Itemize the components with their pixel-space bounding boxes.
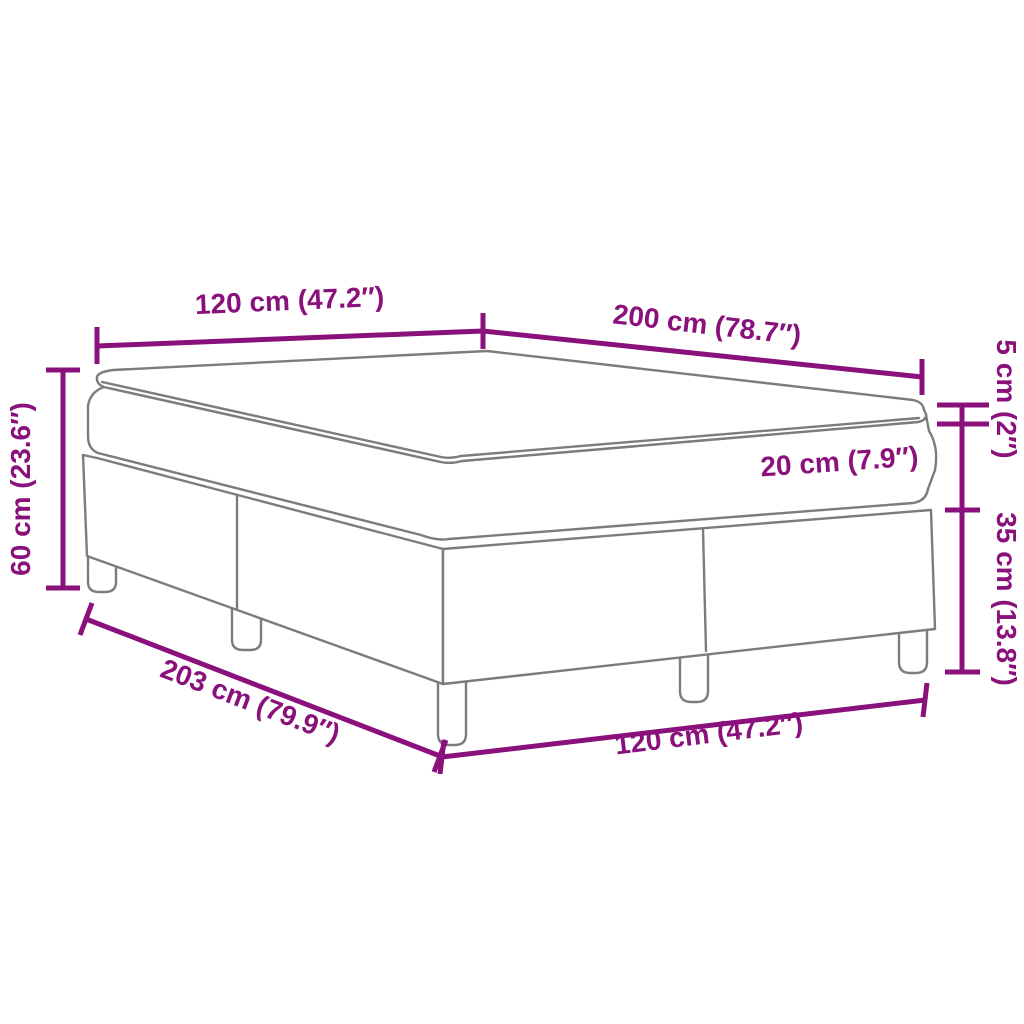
dimension-total-height: 60 cm (23.6″) xyxy=(5,370,80,588)
dimension-label: 200 cm (78.7″) xyxy=(611,298,803,350)
bed-dimension-diagram: 120 cm (47.2″) 200 cm (78.7″) 5 cm (2″) … xyxy=(0,0,1024,1024)
dimension-tick xyxy=(440,740,444,774)
dimension-right-rail: 5 cm (2″) 35 cm (13.8″) xyxy=(937,339,1022,685)
dimension-label-topper-height: 5 cm (2″) xyxy=(991,339,1022,458)
dimension-label: 60 cm (23.6″) xyxy=(5,402,36,576)
dimension-line xyxy=(97,331,483,346)
diagram-canvas: 120 cm (47.2″) 200 cm (78.7″) 5 cm (2″) … xyxy=(0,0,1024,1024)
dimension-label: 120 cm (47.2″) xyxy=(613,707,805,761)
dimension-head-width: 120 cm (47.2″) xyxy=(97,281,483,364)
dimension-tick xyxy=(923,683,927,717)
dimension-label: 120 cm (47.2″) xyxy=(194,281,384,320)
dimension-label-base-height: 35 cm (13.8″) xyxy=(991,512,1022,686)
dimension-label: 203 cm (79.9″) xyxy=(156,653,344,750)
